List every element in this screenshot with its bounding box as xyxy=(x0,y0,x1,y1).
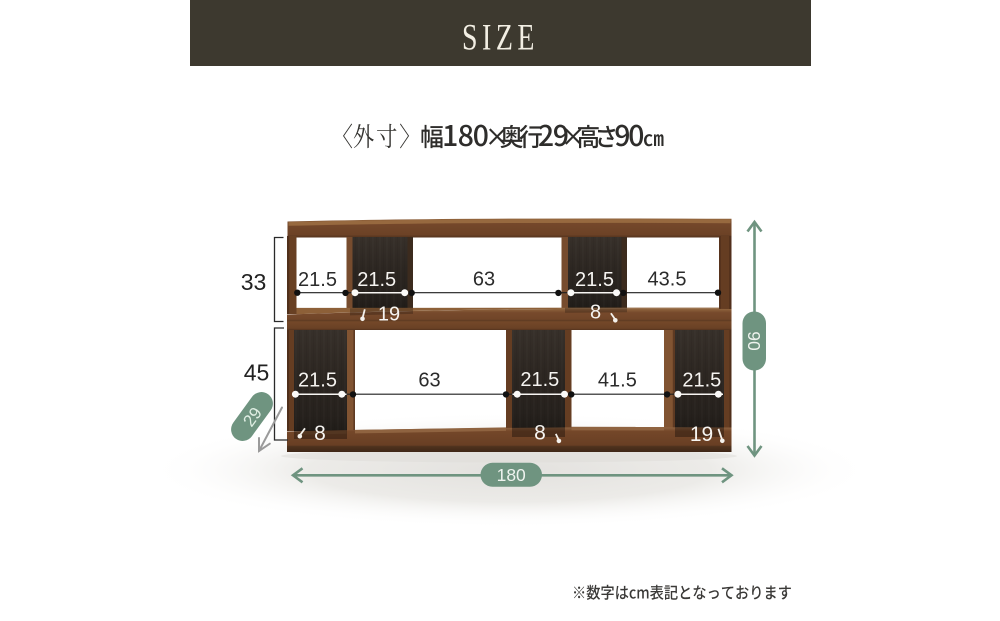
svg-text:8: 8 xyxy=(590,302,601,324)
svg-text:21.5: 21.5 xyxy=(520,369,559,391)
svg-text:19: 19 xyxy=(378,304,400,326)
svg-text:21.5: 21.5 xyxy=(575,269,614,291)
svg-text:90: 90 xyxy=(744,331,764,351)
svg-text:43.5: 43.5 xyxy=(648,269,687,291)
svg-text:33: 33 xyxy=(241,269,267,295)
svg-text:SIZE: SIZE xyxy=(462,17,539,58)
svg-text:21.5: 21.5 xyxy=(298,370,337,392)
svg-text:180: 180 xyxy=(497,465,526,485)
svg-text:21.5: 21.5 xyxy=(298,269,337,291)
svg-text:63: 63 xyxy=(418,370,440,392)
svg-text:21.5: 21.5 xyxy=(357,269,396,291)
svg-text:63: 63 xyxy=(473,269,495,291)
svg-text:45: 45 xyxy=(244,360,270,386)
svg-text:8: 8 xyxy=(314,422,326,445)
svg-text:21.5: 21.5 xyxy=(682,370,721,392)
svg-text:41.5: 41.5 xyxy=(598,370,637,392)
svg-text:8: 8 xyxy=(534,422,546,445)
svg-text:19: 19 xyxy=(690,423,713,446)
